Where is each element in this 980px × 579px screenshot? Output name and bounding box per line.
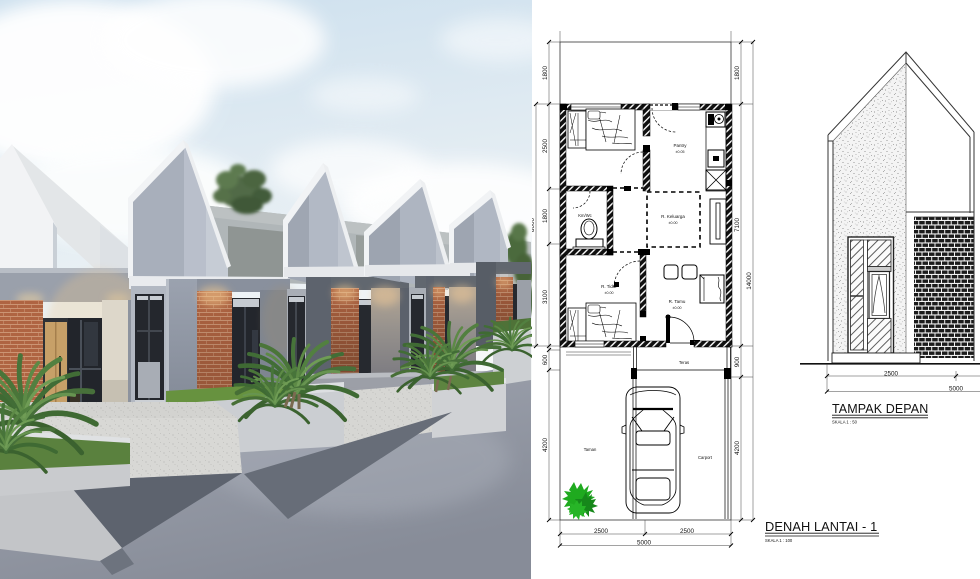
svg-text:±0.05: ±0.05 bbox=[676, 150, 685, 154]
svg-text:7100: 7100 bbox=[734, 218, 741, 233]
svg-text:SKALA 1 : 100: SKALA 1 : 100 bbox=[765, 538, 793, 543]
svg-text:±0.00: ±0.00 bbox=[605, 291, 614, 295]
svg-text:4200: 4200 bbox=[734, 441, 741, 456]
svg-text:TAMPAK DEPAN: TAMPAK DEPAN bbox=[832, 402, 928, 416]
svg-text:2500: 2500 bbox=[542, 139, 549, 154]
svg-text:R. Keluarga: R. Keluarga bbox=[661, 214, 685, 219]
svg-text:2500: 2500 bbox=[594, 528, 609, 535]
svg-text:2500: 2500 bbox=[884, 371, 899, 378]
svg-text:5000: 5000 bbox=[949, 386, 964, 393]
svg-text:Carport: Carport bbox=[698, 455, 713, 460]
svg-text:1800: 1800 bbox=[734, 66, 741, 81]
svg-text:±0.00: ±0.00 bbox=[673, 306, 682, 310]
svg-text:5000: 5000 bbox=[637, 540, 652, 547]
svg-text:SKALA 1 : 50: SKALA 1 : 50 bbox=[832, 420, 858, 425]
svg-text:14000: 14000 bbox=[746, 272, 753, 290]
svg-text:Teras: Teras bbox=[679, 360, 689, 365]
svg-text:Taman: Taman bbox=[584, 447, 597, 452]
svg-text:±0.00: ±0.00 bbox=[669, 221, 678, 225]
svg-text:2500: 2500 bbox=[680, 528, 695, 535]
svg-text:R. Tamu: R. Tamu bbox=[669, 299, 686, 304]
svg-text:1800: 1800 bbox=[542, 66, 549, 81]
svg-text:Km/Wc: Km/Wc bbox=[578, 213, 592, 218]
svg-text:4200: 4200 bbox=[542, 438, 549, 453]
svg-text:DENAH LANTAI - 1: DENAH LANTAI - 1 bbox=[765, 519, 877, 534]
svg-text:8000: 8000 bbox=[532, 218, 536, 233]
svg-text:3100: 3100 bbox=[542, 290, 549, 305]
svg-text:Pantry: Pantry bbox=[673, 143, 687, 148]
svg-text:900: 900 bbox=[734, 356, 741, 367]
svg-text:1800: 1800 bbox=[542, 209, 549, 224]
svg-text:600: 600 bbox=[542, 354, 549, 365]
